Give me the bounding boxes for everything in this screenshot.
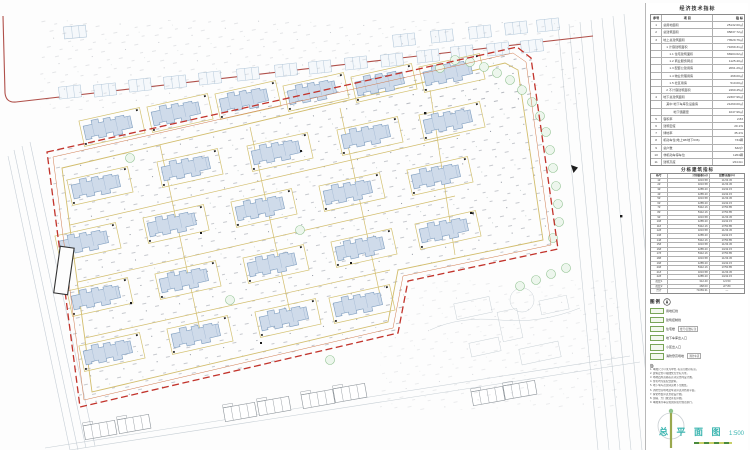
table-row: 1.2 商业服务网点 1125.40㎡	[651, 57, 744, 64]
legend-section: 图例 用地红线 建筑控制线	[650, 298, 745, 360]
unit-indicators-section: 分栋建筑指标 栋号 计容面积(㎡) 层数/高度(m) 1# 3216.58 11…	[650, 166, 745, 293]
unit-table-rows: 1# 3216.58 11/33.45 2# 3216.58 11/33.45 …	[651, 178, 744, 293]
table-row: 2 不计容建筑面积 2460.45㎡	[651, 86, 744, 93]
drawing-info-panel: 经济技术指标 序号 项 目 指 标 1 总用地面积 25132.60㎡ 2	[645, 3, 748, 450]
legend-symbol-box	[650, 308, 664, 315]
unit-indicators-table: 栋号 计容面积(㎡) 层数/高度(m) 1# 3216.58 11/33.45 …	[650, 173, 745, 293]
econ-indicators-section: 经济技术指标 序号 项 目 指 标 1 总用地面积 25132.60㎡ 2	[650, 6, 745, 166]
table-row: 1.1 住宅建筑面积 66904.62㎡	[651, 50, 744, 57]
table-row: 10 非机动车停车位 1264辆	[651, 151, 744, 158]
table-row: 3 地上总建筑面积 73529.76㎡	[651, 36, 744, 43]
legend-item: 小区出入口	[650, 344, 745, 351]
notes-section: 注: 1. 本图尺寸以米为单位, 标高为绝对标高。2. 建筑定位以轴线交点坐标为…	[650, 363, 745, 406]
legend-symbol-box	[650, 317, 664, 324]
econ-table-rows: 1 总用地面积 25132.60㎡ 2 总建筑面积 95837.72㎡ 3 地上…	[651, 21, 744, 165]
table-row: 其中 地下车库及设备房 21260.00㎡	[651, 100, 744, 107]
table-row: 1 计容建筑面积 71069.31㎡	[651, 43, 744, 50]
site-plan-drawing	[0, 0, 750, 450]
table-row: 6 建筑密度 20.1%	[651, 122, 744, 129]
table-row: 1 总用地面积 25132.60㎡	[651, 21, 744, 28]
legend-items: 用地红线 建筑控制线 住宅楼 楼号/层数标注 地下车库出入口	[650, 308, 745, 360]
econ-table-title: 经济技术指标	[650, 6, 745, 13]
table-row: 1.3 配套公建用房 2061.29㎡	[651, 64, 744, 71]
legend-symbol-box	[650, 344, 664, 351]
drawing-title: 总 平 面 图 1:500	[659, 425, 744, 438]
notes-lines: 1. 本图尺寸以米为单位, 标高为绝对标高。2. 建筑定位以轴线交点坐标为准。3…	[650, 368, 745, 406]
legend-item: 用地红线	[650, 308, 745, 315]
title-block: 总 平 面 图 1:500	[648, 404, 746, 448]
north-compass-icon	[663, 298, 671, 306]
unit-table-title: 分栋建筑指标	[650, 166, 745, 173]
table-row: 11 建筑高度 ≤54.0m	[651, 158, 744, 165]
econ-indicators-table: 序号 项 目 指 标 1 总用地面积 25132.60㎡ 2 总建筑面积 9	[650, 14, 745, 166]
table-row: 合计 71069.31 —	[651, 288, 744, 293]
legend-item: 住宅楼 楼号/层数标注	[650, 326, 745, 333]
table-row: 1.5 社区用房 510.00㎡	[651, 79, 744, 86]
scale-bar	[694, 442, 732, 444]
table-row: 2 总建筑面积 95837.72㎡	[651, 28, 744, 35]
legend-symbol-box	[650, 335, 664, 342]
legend-title: 图例	[650, 299, 661, 305]
site-plan-sheet: 经济技术指标 序号 项 目 指 标 1 总用地面积 25132.60㎡ 2	[0, 0, 750, 450]
table-row: 9 总户数 632户	[651, 144, 744, 151]
table-row: 1.4 物业管理用房 468.00㎡	[651, 72, 744, 79]
table-row: 7 绿地率 35.2%	[651, 129, 744, 136]
legend-symbol-box	[650, 326, 664, 333]
legend-symbol-box	[650, 353, 664, 360]
table-row: 5 容积率 2.83	[651, 115, 744, 122]
legend-item: 建筑控制线	[650, 317, 745, 324]
legend-item: 地下车库出入口	[650, 335, 745, 342]
drawing-scale: 1:500	[729, 431, 744, 437]
table-row: 4 地下总建筑面积 22307.96㎡	[651, 93, 744, 100]
legend-item: 消防登高场地 消防车道	[650, 353, 745, 360]
table-row: 8 机动车位(地上98/地下636) 734辆	[651, 136, 744, 143]
table-row: 地下储藏室 1047.96㎡	[651, 108, 744, 115]
